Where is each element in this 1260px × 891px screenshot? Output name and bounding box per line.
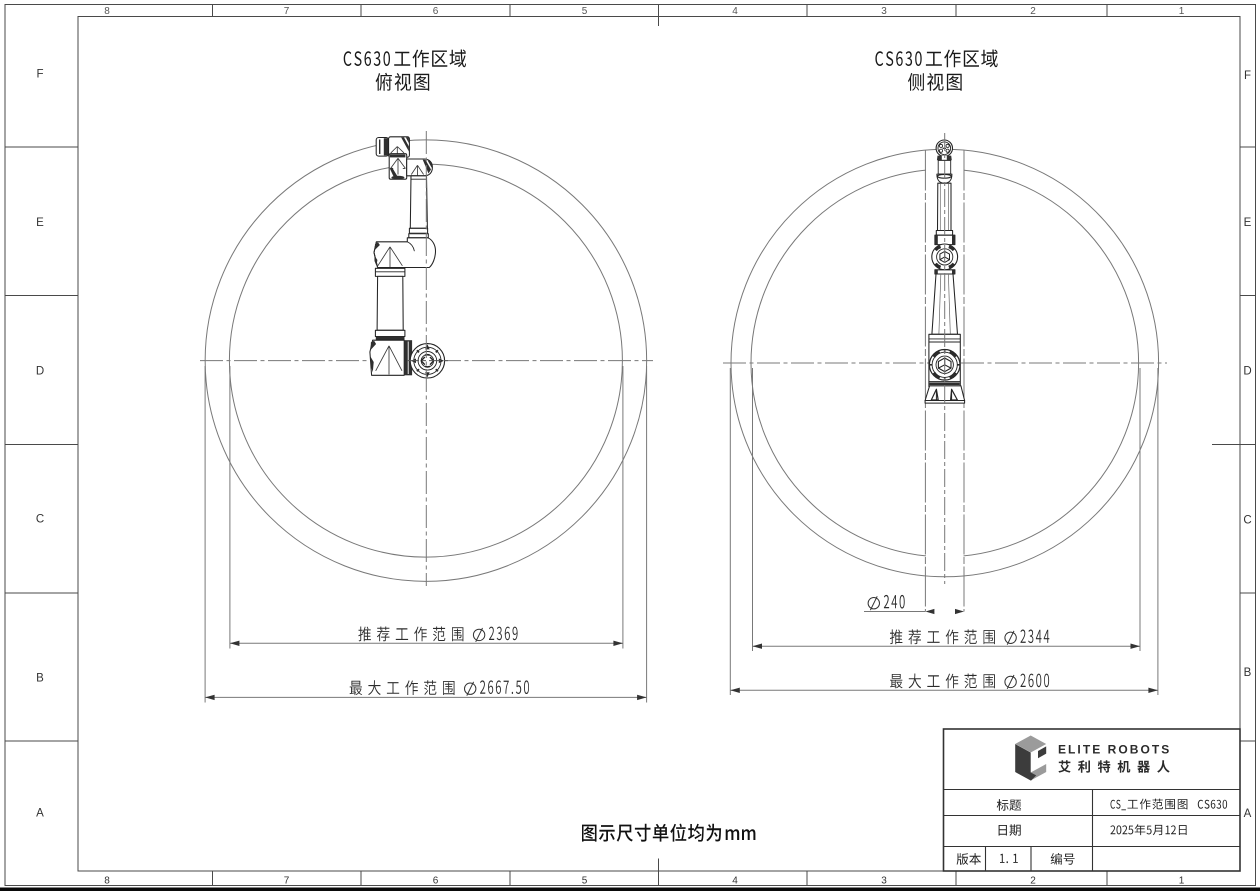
svg-text:4: 4 bbox=[732, 876, 738, 887]
svg-text:6: 6 bbox=[433, 6, 439, 17]
svg-text:ELITE ROBOTS: ELITE ROBOTS bbox=[1058, 743, 1171, 757]
svg-text:F: F bbox=[1244, 70, 1251, 82]
svg-text:E: E bbox=[1244, 217, 1252, 229]
svg-text:5: 5 bbox=[582, 6, 588, 17]
svg-text:2: 2 bbox=[1030, 6, 1036, 17]
svg-text:8: 8 bbox=[104, 6, 110, 17]
svg-text:2: 2 bbox=[1030, 876, 1036, 887]
svg-text:3: 3 bbox=[881, 876, 887, 887]
svg-text:1: 1 bbox=[1179, 876, 1185, 887]
svg-text:A: A bbox=[1244, 808, 1252, 820]
svg-text:7: 7 bbox=[284, 876, 290, 887]
svg-text:C: C bbox=[1243, 515, 1251, 527]
svg-text:3: 3 bbox=[881, 6, 887, 17]
svg-text:A: A bbox=[36, 808, 44, 820]
svg-text:B: B bbox=[1244, 667, 1252, 679]
svg-text:B: B bbox=[36, 673, 44, 685]
svg-text:D: D bbox=[1243, 366, 1251, 378]
svg-text:D: D bbox=[36, 366, 44, 378]
svg-text:8: 8 bbox=[104, 876, 110, 887]
svg-text:F: F bbox=[36, 69, 43, 81]
svg-text:E: E bbox=[36, 217, 44, 229]
svg-text:7: 7 bbox=[284, 6, 290, 17]
svg-text:1: 1 bbox=[1179, 6, 1185, 17]
svg-text:C: C bbox=[36, 514, 44, 526]
svg-text:6: 6 bbox=[433, 876, 439, 887]
svg-text:5: 5 bbox=[582, 876, 588, 887]
svg-text:4: 4 bbox=[732, 6, 738, 17]
